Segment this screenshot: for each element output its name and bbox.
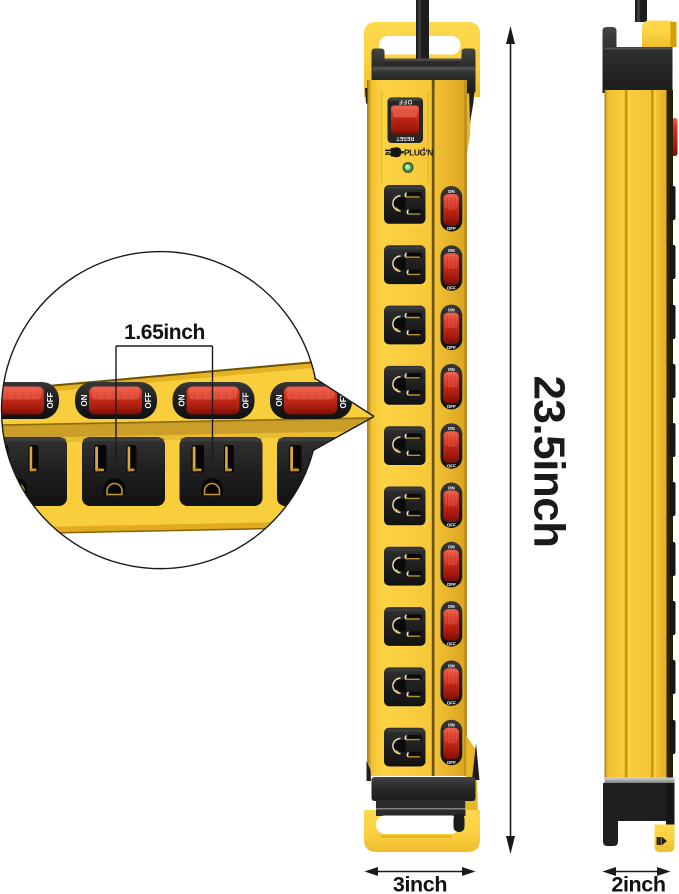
svg-text:OFF: OFF [398, 98, 412, 104]
svg-text:2inch: 2inch [611, 873, 665, 894]
svg-text:PLUG'N: PLUG'N [404, 148, 433, 158]
svg-text:1.65inch: 1.65inch [124, 321, 205, 344]
svg-text:23.5inch: 23.5inch [525, 375, 574, 547]
svg-text:RESET: RESET [396, 135, 415, 141]
svg-text:3inch: 3inch [393, 873, 447, 894]
